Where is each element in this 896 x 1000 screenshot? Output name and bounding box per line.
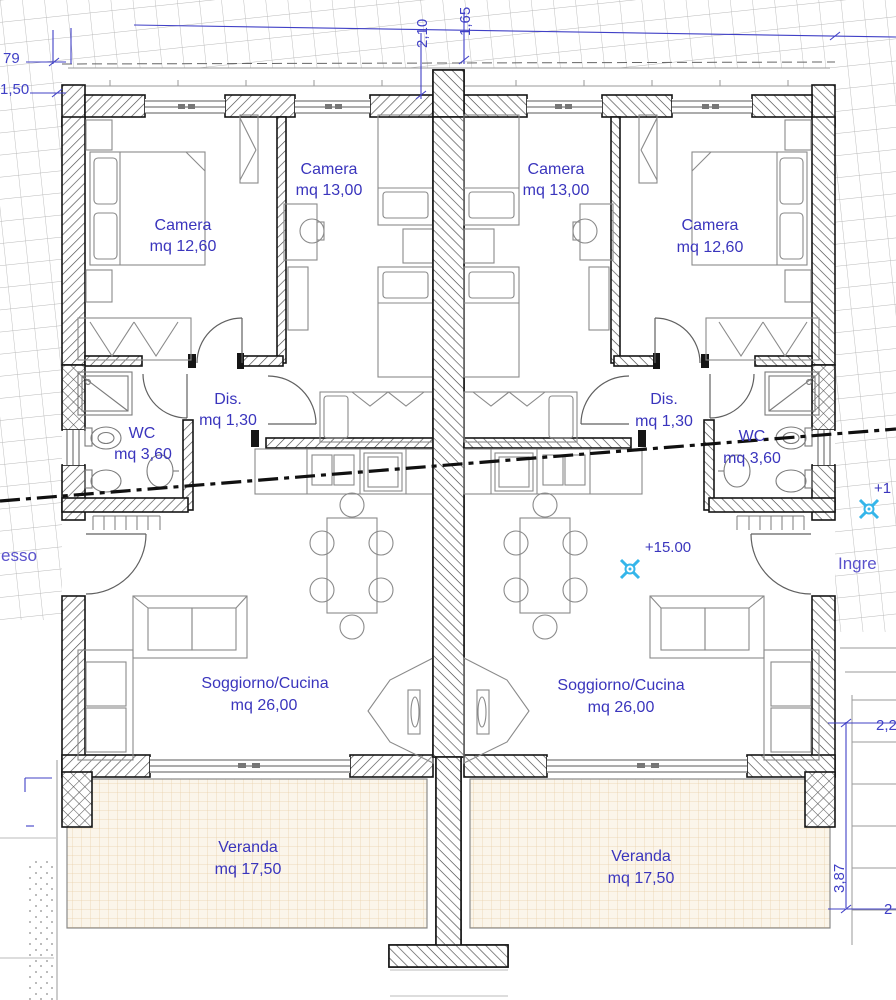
dim-top-center-right: 1,65 [457,7,474,36]
room-veranda-right-name: Veranda [611,848,671,865]
room-veranda-right-area: mq 17,50 [608,870,675,887]
room-wc-right-area: mq 3,60 [723,450,781,467]
room-camera-left-small-area: mq 12,60 [150,238,217,255]
dim-bottom-right-partial: 2 [884,901,892,918]
room-veranda-left-name: Veranda [218,839,278,856]
survey-marker-icon [621,560,639,578]
right-apartment [389,70,835,967]
room-camera-left-small-name: Camera [155,217,212,234]
room-dis-right-name: Dis. [650,391,678,408]
room-veranda-left-area: mq 17,50 [215,861,282,878]
room-dis-left-name: Dis. [214,391,242,408]
dim-right-upper-partial: 2,2 [876,717,896,734]
room-wc-right-name: WC [739,428,766,445]
entrance-label-left-partial: esso [1,546,37,565]
floor-plan-drawing: 79 1,50 2,10 1,65 3,87 2,2 2 Camera mq 1… [0,0,896,1000]
room-soggiorno-left-name: Soggiorno/Cucina [201,675,328,692]
room-dis-left-area: mq 1,30 [199,412,257,429]
dim-right-vertical: 3,87 [831,864,848,893]
room-wc-left-area: mq 3,60 [114,446,172,463]
entrance-label-right-partial: Ingre [838,554,877,573]
room-soggiorno-left-area: mq 26,00 [231,697,298,714]
room-soggiorno-right-name: Soggiorno/Cucina [557,677,684,694]
level-label-right-partial: +1 [874,480,891,497]
room-camera-left-large-area: mq 13,00 [296,182,363,199]
room-camera-right-large-name: Camera [528,161,585,178]
room-camera-right-large-area: mq 13,00 [523,182,590,199]
dim-top-center-left: 2,10 [414,19,431,48]
floor-plan-canvas: 79 1,50 2,10 1,65 3,87 2,2 2 Camera mq 1… [0,0,896,1000]
room-camera-right-small-name: Camera [682,217,739,234]
room-camera-right-small-area: mq 12,60 [677,239,744,256]
room-soggiorno-right-area: mq 26,00 [588,699,655,716]
room-camera-left-large-name: Camera [301,161,358,178]
dim-top-left-lower: 1,50 [0,81,29,98]
room-dis-right-area: mq 1,30 [635,413,693,430]
level-label: +15.00 [645,539,691,556]
room-wc-left-name: WC [129,425,156,442]
dim-top-left-upper: 79 [3,50,20,67]
